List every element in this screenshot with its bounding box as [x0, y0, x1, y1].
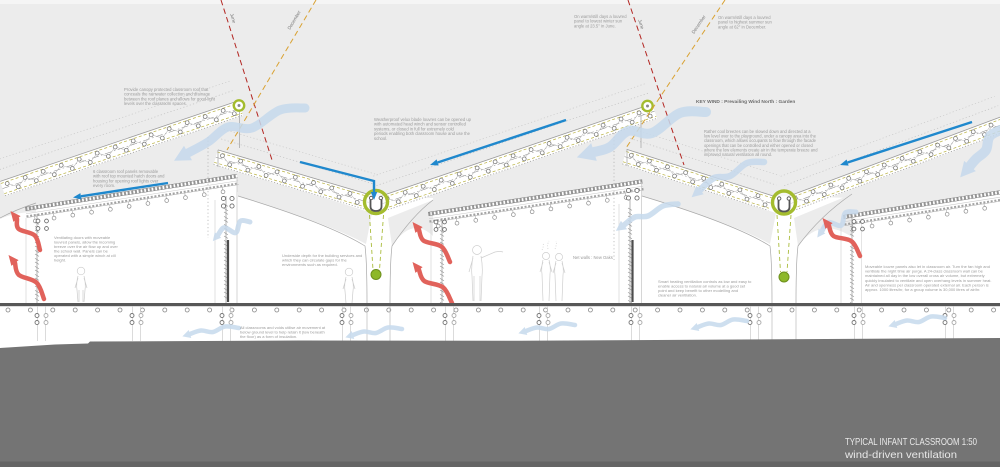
svg-text:Net walls : New Oaks: Net walls : New Oaks — [573, 255, 613, 260]
svg-text:KEY WIND : Prevailing Wind Nor: KEY WIND : Prevailing Wind North : Garde… — [696, 99, 795, 105]
svg-text:angle at 23.5° in June.: angle at 23.5° in June. — [574, 23, 616, 28]
svg-text:angle at 62° in December.: angle at 62° in December. — [718, 24, 766, 29]
svg-text:school.: school. — [374, 136, 387, 141]
svg-text:approx. 1000 litres/hr, for a: approx. 1000 litres/hr, for a group volu… — [865, 287, 980, 292]
svg-text:cleaner air ventilation.: cleaner air ventilation. — [658, 293, 697, 298]
svg-text:TYPICAL INFANT CLASSROOM 1:50: TYPICAL INFANT CLASSROOM 1:50 — [845, 436, 977, 448]
svg-text:periods enabling both classroo: periods enabling both classroom house an… — [374, 131, 471, 136]
svg-text:environments such as required.: environments such as required. — [282, 262, 338, 267]
svg-text:height.: height. — [54, 258, 66, 263]
svg-text:every room.: every room. — [93, 183, 115, 188]
svg-text:levels over the classroom spac: levels over the classroom spaces. — [124, 101, 187, 106]
svg-text:improved natural ventilation a: improved natural ventilation all round. — [704, 152, 772, 157]
svg-text:the floor) as a form of insula: the floor) as a form of insulation. — [240, 334, 297, 339]
svg-text:wind-driven ventilation: wind-driven ventilation — [844, 449, 957, 461]
